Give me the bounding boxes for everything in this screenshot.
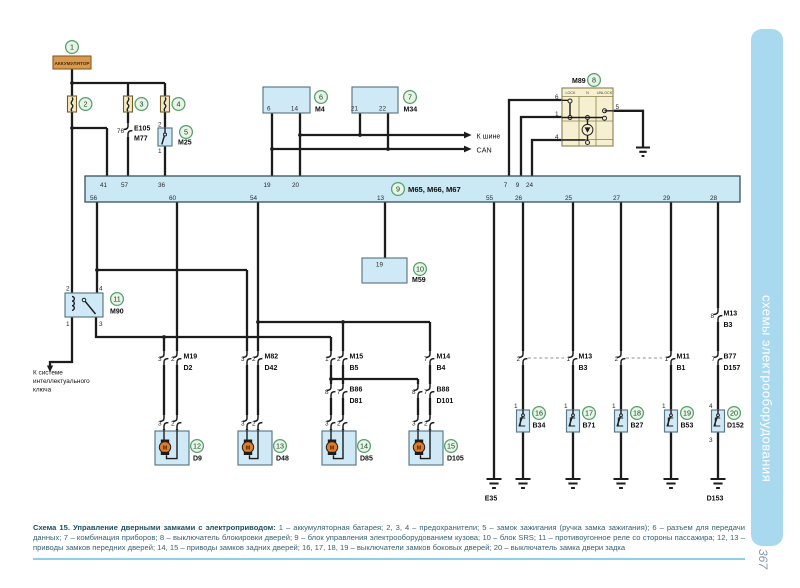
d152-pin-3: 3 bbox=[709, 437, 713, 444]
b27-name: B27 bbox=[631, 423, 644, 430]
bus-pin-27: 27 bbox=[613, 195, 621, 202]
chapter-sidebar-title: схемы электрооборудования bbox=[760, 295, 775, 482]
b3-name: B3 bbox=[579, 365, 588, 372]
m82-pin-3: 3 bbox=[241, 356, 245, 363]
m14-name: M14 bbox=[437, 354, 451, 361]
m89-pin-4: 4 bbox=[555, 134, 559, 141]
d9-pin-3: 3 bbox=[158, 420, 162, 427]
callout-18: 18 bbox=[631, 407, 644, 420]
m34-pin-21: 21 bbox=[351, 106, 359, 113]
battery: 1 АККУМУЛЯТОР bbox=[53, 41, 91, 69]
lock-actuator-d9: M 12 D9 bbox=[155, 431, 203, 465]
m25-name: M25 bbox=[178, 140, 192, 147]
m90-pin-1: 1 bbox=[66, 321, 70, 328]
b77-pin-7: 7 bbox=[711, 356, 715, 363]
can-label-2: CAN bbox=[477, 146, 492, 155]
caption-divider bbox=[33, 558, 745, 560]
b4-name: B4 bbox=[437, 365, 446, 372]
d48-pin-3: 3 bbox=[241, 420, 245, 427]
callout-1-number: 1 bbox=[70, 43, 74, 52]
ground-symbols: E35 D153 bbox=[485, 479, 726, 503]
bus-pin-20: 20 bbox=[292, 182, 300, 189]
callout-15: 15 bbox=[445, 440, 458, 453]
bus-pin-13: 13 bbox=[377, 195, 385, 202]
m11-name: M11 bbox=[677, 354, 690, 361]
bus-pin-24: 24 bbox=[526, 182, 534, 189]
callout-8-number: 8 bbox=[592, 76, 596, 85]
body-control-module-bus: 9 M65, M66, M67 41 57 36 19 20 7 9 24 56… bbox=[85, 176, 740, 202]
b5-name: B5 bbox=[350, 365, 359, 372]
m89-col-n: N bbox=[586, 91, 589, 95]
callout-8: 8 bbox=[588, 74, 601, 87]
d48-name: D48 bbox=[276, 456, 289, 463]
callout-15-number: 15 bbox=[447, 442, 455, 451]
callout-7-number: 7 bbox=[408, 93, 412, 102]
d157-name: D157 bbox=[724, 365, 741, 372]
smart-key-note: К системе интеллектуального ключа bbox=[33, 366, 90, 394]
d85-pin-3: 3 bbox=[325, 420, 329, 427]
door-switch-b71: 1 17 B71 bbox=[564, 403, 596, 432]
d48-pin-2: 2 bbox=[252, 420, 256, 427]
motor-letter: M bbox=[246, 446, 250, 452]
m13-b3-pin-1: 1 bbox=[566, 356, 570, 363]
m13-name: M13 bbox=[579, 354, 593, 361]
m19-pin-3: 3 bbox=[158, 356, 162, 363]
smart-key-line2: интеллектуального bbox=[33, 378, 90, 385]
e105-pin: 76 bbox=[117, 128, 125, 135]
bus-pin-26: 26 bbox=[515, 195, 523, 202]
m77-name: M77 bbox=[134, 136, 148, 143]
callout-5: 5 bbox=[180, 126, 193, 139]
callout-13-number: 13 bbox=[276, 442, 284, 451]
m89-ground-symbol bbox=[636, 148, 650, 157]
m11-b1-pin-2: 2 bbox=[614, 356, 618, 363]
motor-letter: M bbox=[163, 446, 167, 452]
m11-b1-pin-1: 1 bbox=[664, 356, 668, 363]
bus-pin-55: 55 bbox=[486, 195, 494, 202]
callout-19-number: 19 bbox=[683, 409, 691, 418]
callout-14-number: 14 bbox=[360, 442, 368, 451]
motor-letter: M bbox=[417, 446, 421, 452]
d101-name: D101 bbox=[437, 398, 454, 405]
chapter-sidebar: схемы электрооборудования bbox=[751, 29, 783, 546]
m82-name: M82 bbox=[265, 354, 279, 361]
figure-caption-title: Схема 15. Управление дверными замками с … bbox=[33, 523, 276, 532]
actuator-connector-pins: 3 2 3 2 3 2 3 2 bbox=[158, 420, 428, 427]
tailgate-switch-d152: 4 3 20 D152 bbox=[709, 403, 744, 444]
bus-name: M65, M66, M67 bbox=[408, 185, 461, 194]
m19-name: M19 bbox=[184, 354, 198, 361]
callout-11: 11 bbox=[111, 293, 124, 306]
m89-name: M89 bbox=[572, 78, 586, 85]
m15-pin-1: 1 bbox=[325, 356, 329, 363]
smart-key-line1: К системе bbox=[33, 370, 63, 377]
bus-pin-56: 56 bbox=[90, 195, 98, 202]
callout-4-number: 4 bbox=[177, 100, 181, 109]
m34-box bbox=[352, 87, 398, 113]
door-switch-b53: 1 19 B53 bbox=[662, 403, 694, 432]
callout-20: 20 bbox=[728, 407, 741, 420]
callout-3-number: 3 bbox=[140, 100, 144, 109]
callout-18-number: 18 bbox=[633, 409, 641, 418]
b88-pin-8: 8 bbox=[412, 389, 416, 396]
callout-6: 6 bbox=[315, 91, 328, 104]
m14-pin-7: 7 bbox=[424, 356, 428, 363]
d9-pin-2: 2 bbox=[171, 420, 175, 427]
callout-19: 19 bbox=[681, 407, 694, 420]
bus-pin-28: 28 bbox=[710, 195, 718, 202]
anti-theft-relay-m90: 2 4 1 3 11 M90 bbox=[65, 286, 124, 329]
m89-col-unlock: UNLOCK bbox=[597, 91, 613, 95]
bus-pin-9: 9 bbox=[516, 182, 520, 189]
bus-pin-7: 7 bbox=[504, 182, 508, 189]
fuses: 2 3 4 bbox=[68, 96, 185, 112]
bus-pin-54: 54 bbox=[250, 195, 258, 202]
m4-pin-6: 6 bbox=[267, 106, 271, 113]
callout-4: 4 bbox=[172, 98, 185, 111]
m59-name: M59 bbox=[412, 277, 426, 284]
b34-pin-1: 1 bbox=[514, 403, 518, 410]
b53-name: B53 bbox=[681, 423, 694, 430]
callout-9-number: 9 bbox=[396, 185, 400, 194]
m90-name: M90 bbox=[110, 309, 124, 316]
m25-pin-bottom: 1 bbox=[158, 148, 162, 155]
lock-actuator-d85: M 14 D85 bbox=[322, 431, 373, 465]
m34-name: M34 bbox=[404, 107, 418, 114]
m15-name: M15 bbox=[350, 354, 364, 361]
door-switch-b34: 1 16 B34 bbox=[514, 403, 546, 432]
callout-6-number: 6 bbox=[319, 93, 323, 102]
lock-actuator-d105: M 15 D105 bbox=[409, 431, 464, 465]
m59-box bbox=[362, 258, 407, 283]
right-connectors: 8 M13 B3 2 1 M13 B3 2 1 M11 B1 7 B77 D15… bbox=[516, 311, 740, 373]
d105-pin-3: 3 bbox=[412, 420, 416, 427]
ground-d153-label: D153 bbox=[707, 496, 724, 503]
b3-upper-name: B3 bbox=[724, 322, 733, 329]
m4-name: M4 bbox=[315, 107, 325, 114]
figure-caption: Схема 15. Управление дверными замками с … bbox=[33, 523, 745, 553]
callout-5-number: 5 bbox=[184, 128, 188, 137]
bus-pin-25: 25 bbox=[565, 195, 573, 202]
d81-name: D81 bbox=[350, 398, 363, 405]
d42-name: D42 bbox=[265, 365, 278, 372]
door-switch-b27: 1 18 B27 bbox=[612, 403, 644, 432]
m90-box bbox=[65, 293, 103, 317]
ground-e35-label: E35 bbox=[485, 496, 498, 503]
callout-9: 9 bbox=[392, 183, 405, 196]
manual-page: 1 АККУМУЛЯТОР 2 3 4 76 E105 M77 2 1 5 M2… bbox=[0, 0, 800, 588]
callout-17: 17 bbox=[583, 407, 596, 420]
callout-10: 10 bbox=[414, 263, 427, 276]
bus-pin-57: 57 bbox=[121, 182, 129, 189]
callout-13: 13 bbox=[274, 440, 287, 453]
e105-name: E105 bbox=[134, 126, 150, 133]
callout-11-number: 11 bbox=[113, 295, 120, 304]
d9-name: D9 bbox=[193, 456, 202, 463]
callout-12-number: 12 bbox=[193, 442, 201, 451]
m90-pin-3: 3 bbox=[99, 321, 103, 328]
m89-col-lock: LOCK bbox=[565, 91, 576, 95]
can-label-1: К шине bbox=[477, 132, 501, 141]
can-bus-arrows: К шине CAN bbox=[464, 132, 500, 155]
battery-label: АККУМУЛЯТОР bbox=[55, 61, 90, 66]
d85-name: D85 bbox=[360, 456, 373, 463]
m13-b3-pin-8: 8 bbox=[710, 313, 714, 320]
m90-pin-2: 2 bbox=[66, 286, 70, 293]
callout-10-number: 10 bbox=[416, 265, 424, 274]
page-number: 367 bbox=[756, 549, 770, 569]
instrument-cluster-m34: 21 22 7 M34 bbox=[351, 87, 417, 114]
callout-20-number: 20 bbox=[730, 409, 738, 418]
door-lock-switch-m89: M89 8 LOCK N UNLOCK 6 1 4 5 bbox=[555, 74, 650, 156]
ignition-lock-m25: 2 1 5 M25 bbox=[158, 122, 192, 156]
b88-name: B88 bbox=[437, 387, 450, 394]
bus-pin-29: 29 bbox=[663, 195, 671, 202]
m13-upper-name: M13 bbox=[724, 311, 738, 318]
callout-3: 3 bbox=[135, 98, 148, 111]
smart-key-line3: ключа bbox=[33, 387, 52, 394]
bus-pin-41: 41 bbox=[100, 182, 108, 189]
m89-pin-1: 1 bbox=[555, 111, 559, 118]
m59-pin-19: 19 bbox=[376, 262, 384, 269]
bus-pin-60: 60 bbox=[169, 195, 177, 202]
m4-pin-14: 14 bbox=[291, 106, 299, 113]
d152-name: D152 bbox=[727, 423, 744, 430]
m34-pin-22: 22 bbox=[379, 106, 387, 113]
connector-symbols bbox=[124, 123, 723, 429]
bus-pin-36: 36 bbox=[158, 182, 166, 189]
b71-pin-1: 1 bbox=[564, 403, 568, 410]
callout-1: 1 bbox=[66, 41, 79, 54]
b88-pin-7: 7 bbox=[424, 389, 428, 396]
m19-pin-2: 2 bbox=[171, 356, 175, 363]
m82-pin-2: 2 bbox=[252, 356, 256, 363]
b86-pin-8: 8 bbox=[325, 389, 329, 396]
bus-pin-19: 19 bbox=[263, 182, 271, 189]
m90-pin-4: 4 bbox=[99, 286, 103, 293]
callout-7: 7 bbox=[404, 91, 417, 104]
b53-pin-1: 1 bbox=[662, 403, 666, 410]
callout-14: 14 bbox=[358, 440, 371, 453]
connector-e105-m77: 76 E105 M77 bbox=[117, 126, 151, 143]
d105-name: D105 bbox=[447, 456, 464, 463]
m13-b3-pin-2: 2 bbox=[516, 356, 520, 363]
callout-12: 12 bbox=[191, 440, 204, 453]
m15-pin-2: 2 bbox=[337, 356, 341, 363]
b86-pin-7: 7 bbox=[337, 389, 341, 396]
callout-2: 2 bbox=[79, 98, 92, 111]
b27-pin-1: 1 bbox=[612, 403, 616, 410]
motor-letter: M bbox=[330, 446, 334, 452]
data-link-connector-m4: 6 14 6 M4 bbox=[263, 87, 327, 114]
b77-name: B77 bbox=[724, 354, 737, 361]
m25-pin-top: 2 bbox=[158, 122, 162, 129]
wiring-diagram: 1 АККУМУЛЯТОР 2 3 4 76 E105 M77 2 1 5 M2… bbox=[0, 0, 800, 520]
d85-pin-2: 2 bbox=[337, 420, 341, 427]
m89-pin-6: 6 bbox=[555, 94, 559, 101]
d152-pin-4: 4 bbox=[709, 403, 713, 410]
callout-16-number: 16 bbox=[535, 409, 543, 418]
callout-17-number: 17 bbox=[585, 409, 593, 418]
b1-name: B1 bbox=[677, 365, 686, 372]
b86-name: B86 bbox=[350, 387, 363, 394]
d2-name: D2 bbox=[184, 365, 193, 372]
b71-name: B71 bbox=[583, 423, 596, 430]
d105-pin-2: 2 bbox=[424, 420, 428, 427]
callout-16: 16 bbox=[533, 407, 546, 420]
lock-actuator-d48: M 13 D48 bbox=[238, 431, 289, 465]
callout-2-number: 2 bbox=[84, 100, 88, 109]
srs-block-m59: 19 10 M59 bbox=[362, 258, 426, 284]
b34-name: B34 bbox=[533, 423, 546, 430]
m89-pin-5: 5 bbox=[616, 104, 620, 111]
